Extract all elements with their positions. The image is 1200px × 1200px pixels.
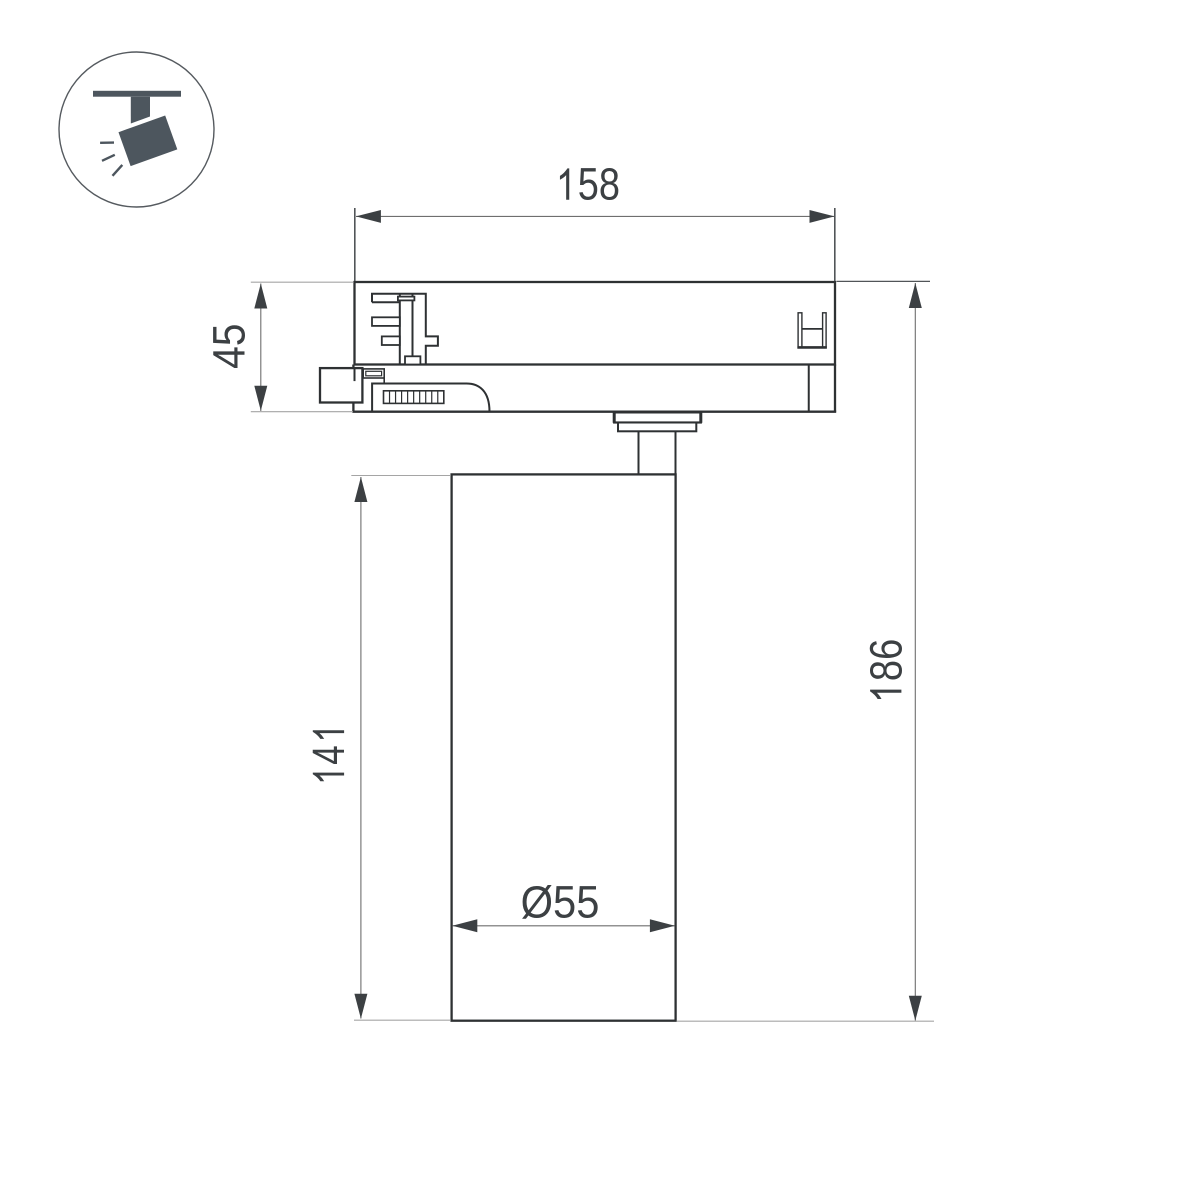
svg-text:58: 58	[578, 158, 620, 209]
svg-text:Ø55: Ø55	[521, 878, 600, 928]
svg-text:4: 4	[303, 745, 355, 764]
svg-text:86: 86	[860, 639, 911, 681]
svg-text:45: 45	[205, 323, 255, 369]
